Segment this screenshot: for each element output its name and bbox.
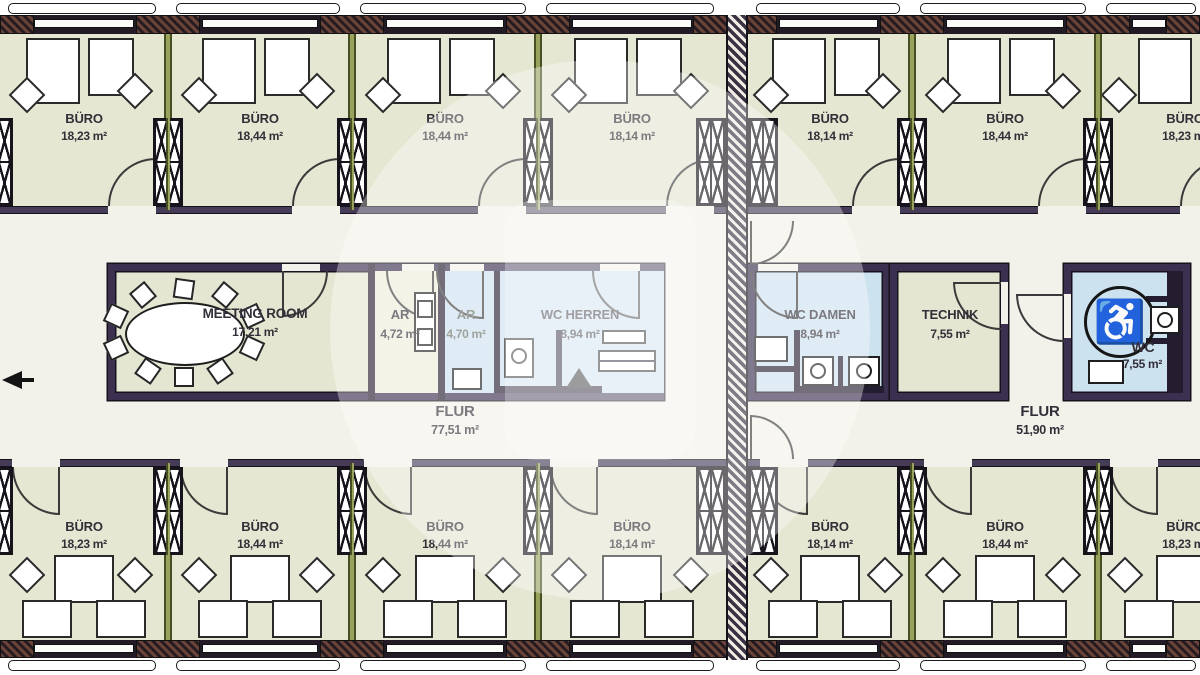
- desk: [1124, 600, 1174, 638]
- room-area: 7,55 m²: [890, 328, 1010, 341]
- room-name: MEETING ROOM: [185, 306, 325, 321]
- window: [386, 19, 504, 28]
- door-opening: [12, 459, 60, 467]
- chair: [181, 557, 218, 594]
- desk: [975, 555, 1035, 603]
- window: [946, 19, 1064, 28]
- corridor-name: FLUR: [395, 404, 515, 421]
- desk: [1138, 38, 1192, 104]
- door-opening: [402, 264, 434, 271]
- desk: [800, 555, 860, 603]
- chair: [299, 557, 336, 594]
- wall-pier: [136, 640, 200, 658]
- room-area: 18,14 m²: [770, 538, 890, 551]
- toilet-bowl: [1157, 312, 1173, 328]
- door-opening: [450, 264, 484, 271]
- door-opening: [180, 459, 228, 467]
- partition-core: [536, 118, 540, 210]
- chair: [173, 278, 196, 301]
- sink: [452, 368, 482, 390]
- room-area: 18,23 m²: [1125, 538, 1200, 551]
- door-arc: [1110, 467, 1158, 515]
- window: [1132, 19, 1166, 28]
- office-bottom-6: BÜRO 18,44 m²: [912, 467, 1098, 640]
- door-opening: [282, 264, 320, 271]
- room-area: 18,14 m²: [572, 538, 692, 551]
- door-arc: [1180, 158, 1200, 206]
- desk: [1156, 555, 1200, 603]
- urinal: [566, 368, 592, 388]
- wall-pier: [880, 640, 944, 658]
- partition-wall: [348, 34, 356, 118]
- wall-pier: [506, 15, 570, 34]
- partition-core: [910, 118, 914, 210]
- wall-pier: [1066, 640, 1130, 658]
- partition-wall: [164, 555, 172, 640]
- window-strip: [8, 660, 156, 671]
- window-strip: [920, 660, 1086, 671]
- partition-wall: [534, 34, 542, 118]
- door-arc: [364, 467, 412, 515]
- partition-wall: [534, 555, 542, 640]
- room-name: AR: [436, 308, 496, 323]
- window: [202, 644, 318, 653]
- room-area: 18,44 m²: [385, 538, 505, 551]
- room-name: WC HERREN: [520, 308, 640, 323]
- room-name: BÜRO: [200, 112, 320, 127]
- window: [34, 19, 134, 28]
- office-bottom-3: BÜRO 18,44 m²: [352, 467, 538, 640]
- window-strip: [920, 3, 1086, 14]
- shelf-line: [754, 366, 796, 372]
- entrance-arrow-tail: [20, 378, 34, 382]
- chair: [117, 557, 154, 594]
- window: [779, 644, 878, 653]
- room-name: BÜRO: [24, 520, 144, 535]
- door-opening: [292, 206, 340, 214]
- window-strip: [546, 660, 714, 671]
- door-opening: [852, 206, 900, 214]
- room-name: BÜRO: [945, 112, 1065, 127]
- room-area: 18,44 m²: [200, 130, 320, 143]
- window: [34, 644, 134, 653]
- window-strip: [546, 3, 714, 14]
- partition-wall: [164, 34, 172, 118]
- door-arc: [924, 467, 972, 515]
- window-strip: [756, 660, 900, 671]
- window-strip: [176, 3, 340, 14]
- partition-core: [536, 463, 540, 555]
- door-opening: [364, 459, 412, 467]
- bench-line: [600, 360, 654, 362]
- door-opening: [760, 459, 808, 467]
- office-top-1: BÜRO 18,23 m²: [0, 34, 168, 206]
- partition-core: [350, 463, 354, 555]
- corridor-area: 51,90 m²: [980, 423, 1100, 437]
- partition-wall: [908, 555, 916, 640]
- partition-core: [166, 118, 170, 210]
- partition-core: [1096, 118, 1100, 210]
- chair: [1045, 557, 1082, 594]
- office-top-2: BÜRO 18,44 m²: [168, 34, 352, 206]
- wheelchair-glyph: ♿: [1094, 301, 1146, 343]
- chair: [174, 367, 194, 387]
- toilet-bowl: [856, 363, 872, 379]
- window: [1132, 644, 1166, 653]
- corridor-wall-north: [0, 206, 1200, 214]
- office-bottom-2: BÜRO 18,44 m²: [168, 467, 352, 640]
- wall-panel-symbol: [748, 118, 778, 206]
- door-opening: [1038, 206, 1086, 214]
- wall-pier: [0, 15, 34, 34]
- room-name: BÜRO: [1125, 520, 1200, 535]
- floor-plan: BÜRO 18,23 m² BÜRO 18,44 m² BÜRO 18,44 m…: [0, 0, 1200, 675]
- room-area: 18,14 m²: [770, 130, 890, 143]
- room-area: 4,70 m²: [426, 328, 506, 341]
- window-strip: [360, 660, 526, 671]
- room-name: BÜRO: [770, 112, 890, 127]
- wall-pier: [320, 15, 384, 34]
- wall-pier: [1166, 640, 1200, 658]
- door-opening: [108, 206, 156, 214]
- desk: [768, 600, 818, 638]
- door-opening: [1180, 206, 1200, 214]
- wall-panel-symbol: [0, 467, 13, 555]
- chair: [925, 557, 962, 594]
- room-area: 18,14 m²: [572, 130, 692, 143]
- desk: [943, 600, 993, 638]
- door-opening: [924, 459, 972, 467]
- fixture-line: [1146, 296, 1182, 302]
- room-name: BÜRO: [24, 112, 144, 127]
- office-top-7: BÜRO 18,23 m²: [1098, 34, 1200, 206]
- door-arc: [108, 158, 156, 206]
- stall-wall: [796, 386, 884, 393]
- window: [946, 644, 1064, 653]
- chair: [673, 557, 710, 594]
- room-name: BÜRO: [385, 112, 505, 127]
- washbasin-bowl: [511, 348, 527, 364]
- partition-wall: [1094, 34, 1102, 118]
- desk: [415, 555, 475, 603]
- room-area: 18,23 m²: [24, 130, 144, 143]
- room-area: 8,94 m²: [760, 328, 880, 341]
- door-arc: [478, 158, 526, 206]
- chair: [753, 557, 790, 594]
- room-name: TECHNIK: [890, 308, 1010, 323]
- wall-pier: [1166, 15, 1200, 34]
- corridor-area: 77,51 m²: [395, 423, 515, 437]
- partition-core: [910, 463, 914, 555]
- room-area: 18,44 m²: [945, 130, 1065, 143]
- expansion-joint-wall: [726, 15, 748, 660]
- window-strip: [360, 3, 526, 14]
- wall-pier: [880, 15, 944, 34]
- desk: [230, 555, 290, 603]
- wall-pier: [136, 15, 200, 34]
- wall-panel-symbol: [748, 467, 778, 555]
- window-strip: [1106, 3, 1196, 14]
- room-name: AR: [370, 308, 430, 323]
- chair: [1107, 557, 1144, 594]
- chair: [867, 557, 904, 594]
- window-strip: [756, 3, 900, 14]
- toilet-bowl: [810, 363, 826, 379]
- room-area: 8,94 m²: [520, 328, 640, 341]
- room-name: BÜRO: [945, 520, 1065, 535]
- desk: [54, 555, 114, 603]
- wall-pier: [1066, 15, 1130, 34]
- office-bottom-1: BÜRO 18,23 m²: [0, 467, 168, 640]
- desk: [1017, 600, 1067, 638]
- door-arc: [550, 467, 598, 515]
- partition-core: [166, 463, 170, 555]
- room-name: BÜRO: [770, 520, 890, 535]
- room-name: WC DAMEN: [760, 308, 880, 323]
- wall-pier: [0, 640, 34, 658]
- room-name: BÜRO: [1125, 112, 1200, 127]
- partition-wall: [1094, 555, 1102, 640]
- window: [202, 19, 318, 28]
- desk: [96, 600, 146, 638]
- door-arc: [12, 467, 60, 515]
- desk: [272, 600, 322, 638]
- window: [386, 644, 504, 653]
- partition-core: [350, 118, 354, 210]
- door-arc: [852, 158, 900, 206]
- chair: [365, 557, 402, 594]
- office-top-3: BÜRO 18,44 m²: [352, 34, 538, 206]
- desk: [383, 600, 433, 638]
- door-opening: [1110, 459, 1158, 467]
- door-opening: [550, 459, 598, 467]
- room-area: 18,23 m²: [24, 538, 144, 551]
- office-top-6: BÜRO 18,44 m²: [912, 34, 1098, 206]
- door-arc: [180, 467, 228, 515]
- wall-panel-symbol: [0, 118, 13, 206]
- partition-core: [1096, 463, 1100, 555]
- room-area: 18,44 m²: [385, 130, 505, 143]
- wall-pier: [320, 640, 384, 658]
- room-name: WC: [1113, 340, 1173, 356]
- window-strip: [1106, 660, 1196, 671]
- door-opening: [600, 264, 640, 271]
- desk: [457, 600, 507, 638]
- wall-pier: [506, 640, 570, 658]
- desk: [570, 600, 620, 638]
- door-arc: [292, 158, 340, 206]
- chair: [485, 557, 522, 594]
- desk: [842, 600, 892, 638]
- window: [779, 19, 878, 28]
- partition-wall: [908, 34, 916, 118]
- desk: [602, 555, 662, 603]
- room-area: 18,44 m²: [945, 538, 1065, 551]
- chair: [9, 557, 46, 594]
- room-area: 18,23 m²: [1125, 130, 1200, 143]
- room-area: 7,55 m²: [1095, 358, 1190, 371]
- room-name: BÜRO: [200, 520, 320, 535]
- door-opening: [666, 206, 714, 214]
- door-opening: [758, 264, 798, 271]
- wall-panel-symbol: [696, 467, 726, 555]
- desk: [198, 600, 248, 638]
- wall-panel-symbol: [696, 118, 726, 206]
- room-name: BÜRO: [572, 520, 692, 535]
- desk: [644, 600, 694, 638]
- entrance-arrow-icon: [2, 371, 22, 389]
- chair: [1101, 77, 1138, 114]
- desk: [22, 600, 72, 638]
- partition-wall: [348, 555, 356, 640]
- office-bottom-7: BÜRO 18,23 m²: [1098, 467, 1200, 640]
- window: [572, 644, 692, 653]
- room-name: BÜRO: [572, 112, 692, 127]
- room-area: 17,21 m²: [185, 326, 325, 339]
- door-arc: [1038, 158, 1086, 206]
- door-opening: [478, 206, 526, 214]
- corridor-name: FLUR: [980, 404, 1100, 421]
- room-name: BÜRO: [385, 520, 505, 535]
- window-strip: [176, 660, 340, 671]
- window: [572, 19, 692, 28]
- window-strip: [8, 3, 156, 14]
- door-opening: [1064, 294, 1071, 338]
- chair: [551, 557, 588, 594]
- room-area: 18,44 m²: [200, 538, 320, 551]
